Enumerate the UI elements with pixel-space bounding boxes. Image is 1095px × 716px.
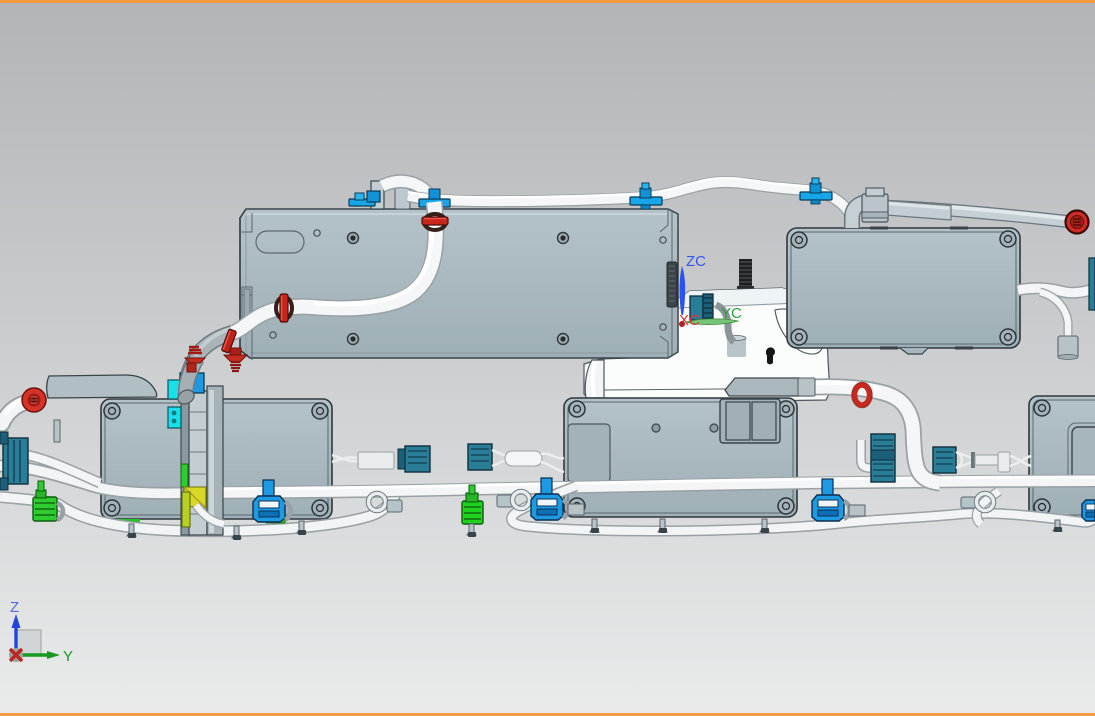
svg-text:ZC: ZC xyxy=(686,253,706,270)
svg-text:Y: Y xyxy=(63,648,73,665)
svg-text:Z: Z xyxy=(10,599,19,616)
